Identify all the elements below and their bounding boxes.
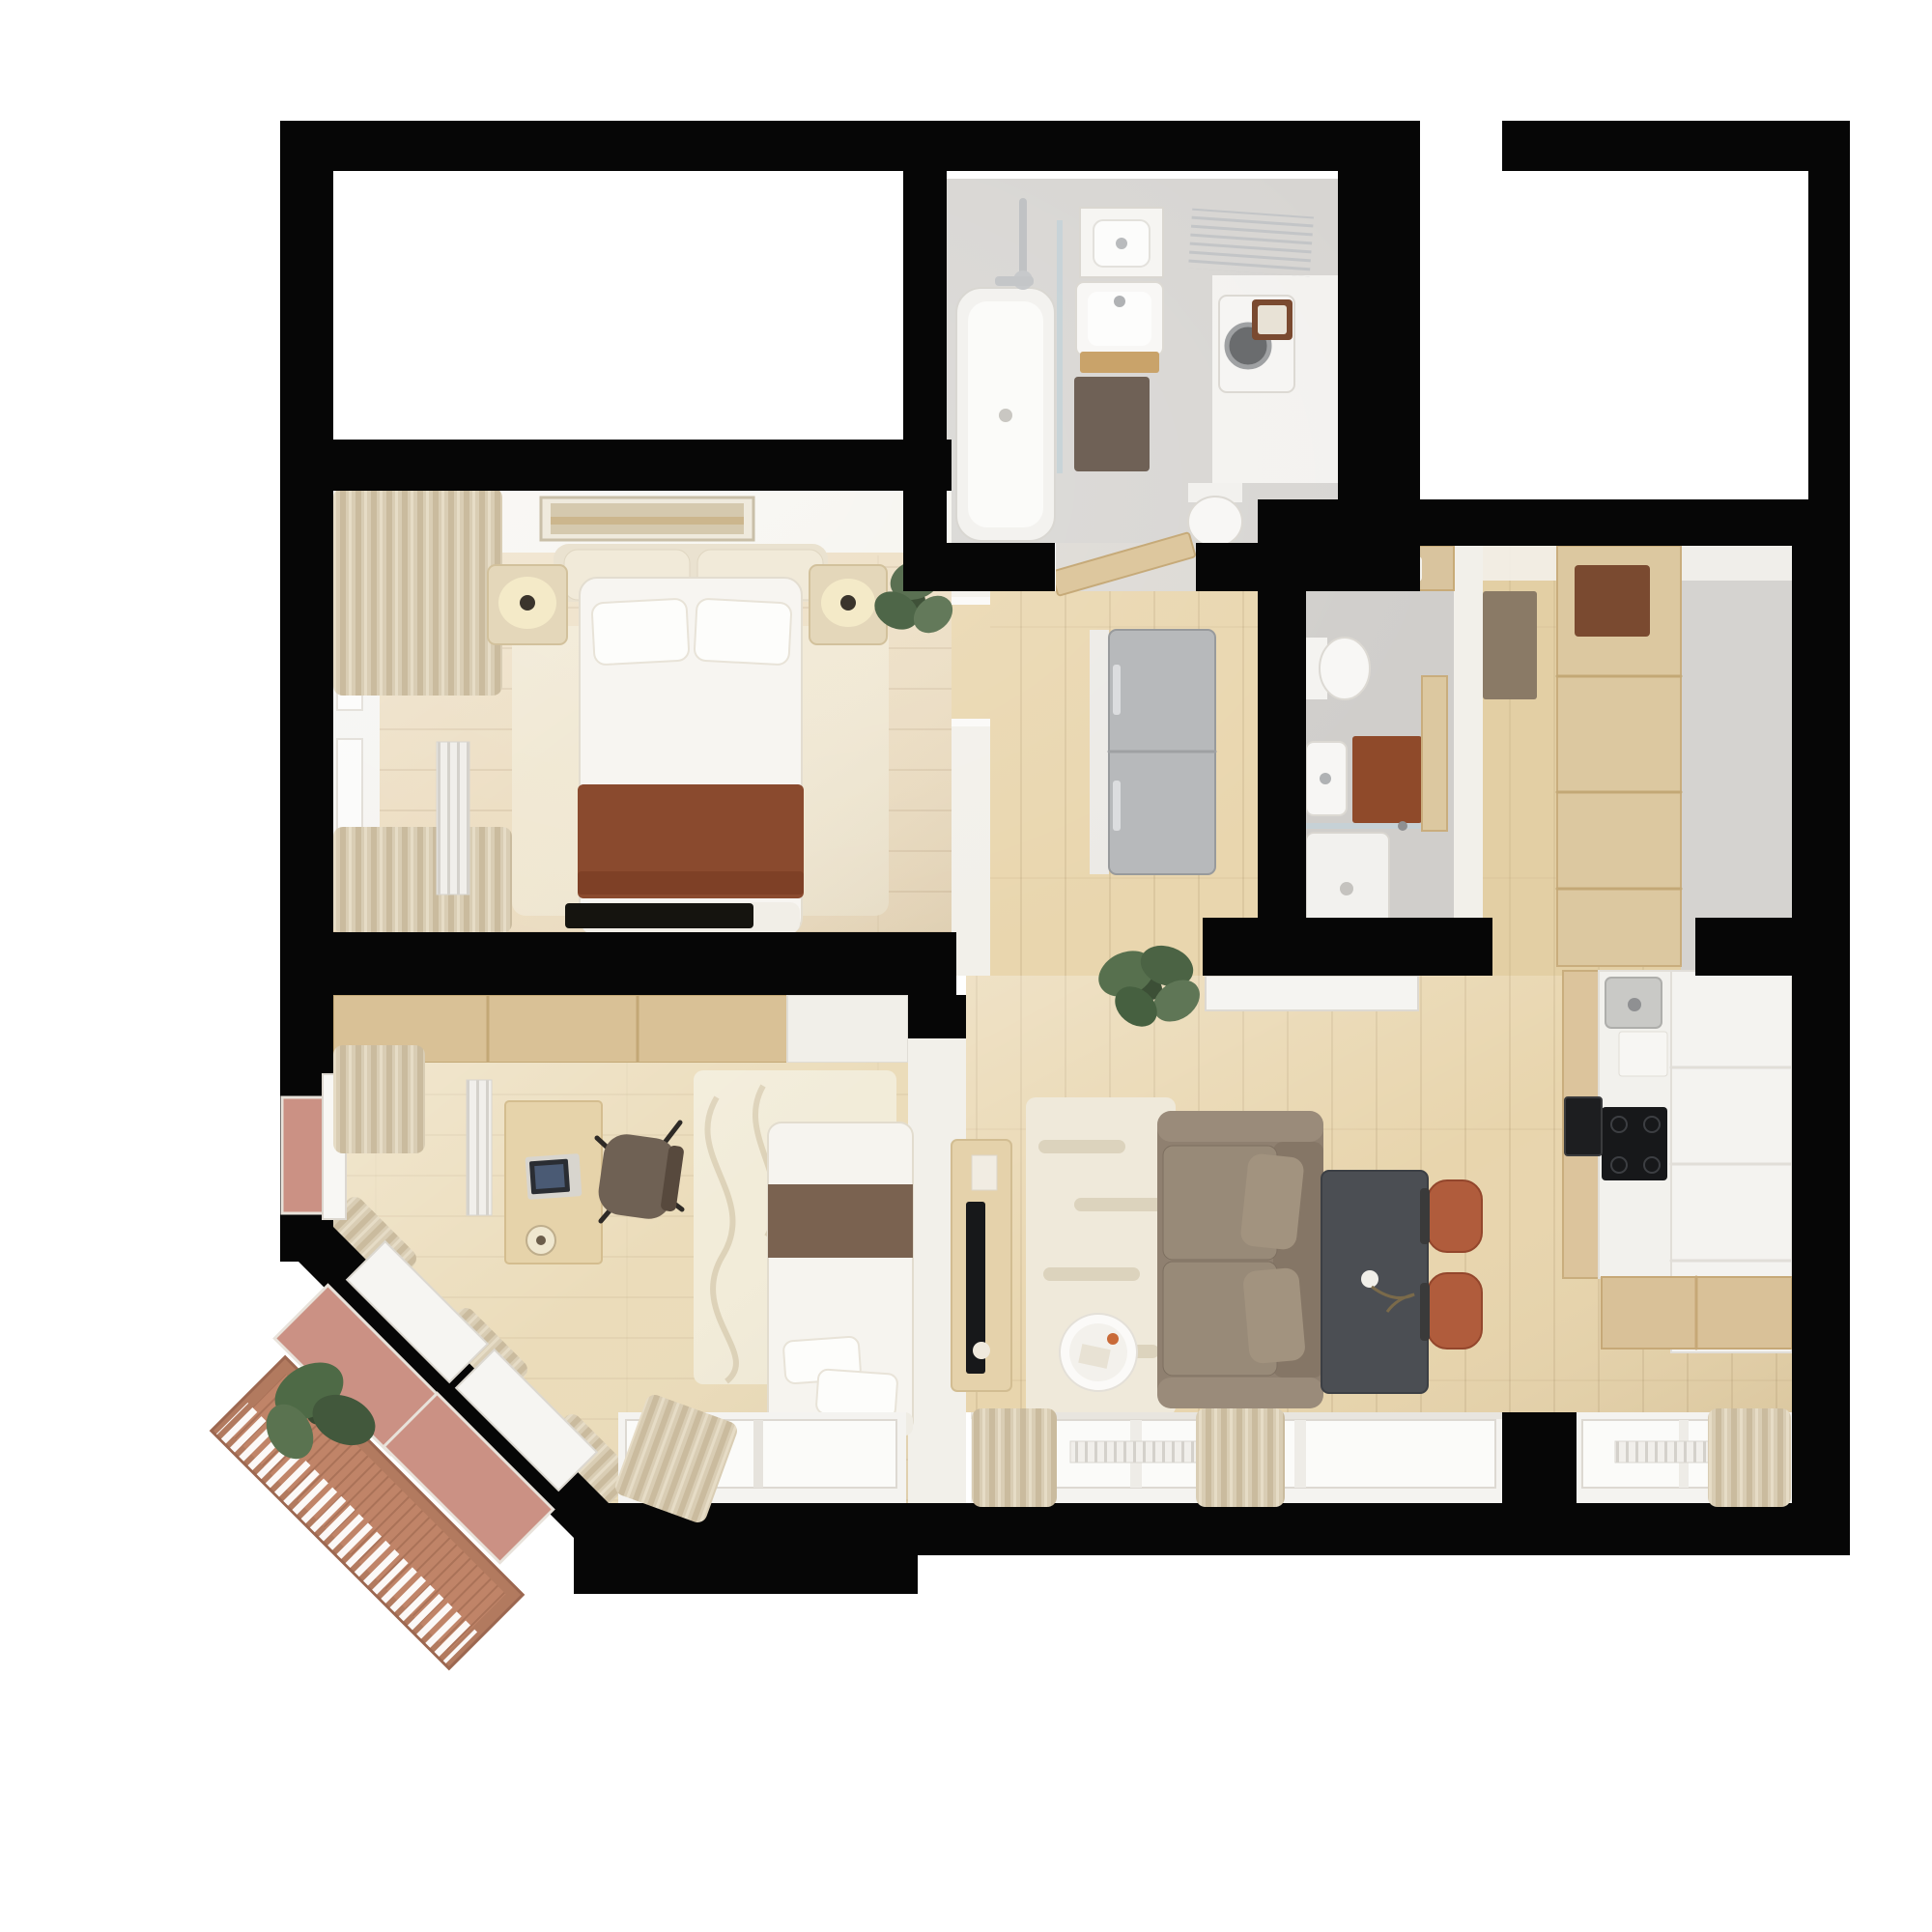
kids-bottom-mullion — [753, 1420, 763, 1488]
vanity-sink-faucet — [1114, 296, 1125, 307]
bath2-faucet — [1320, 773, 1331, 784]
bedroom-curtain-bottom — [333, 827, 512, 933]
bed-blanket-fold — [578, 871, 804, 895]
living-rug-motif-2 — [1074, 1198, 1163, 1211]
vanity-wood-base — [1080, 352, 1159, 373]
wall-top-right — [1502, 121, 1850, 171]
dining-table-cup — [1361, 1270, 1378, 1288]
bedroom-curtain-top — [333, 488, 502, 696]
wall-bath1-bottom-right — [1196, 543, 1420, 591]
wall-right-upper — [1808, 171, 1850, 499]
bathtub-drain — [999, 409, 1012, 422]
lamp-right — [840, 595, 856, 611]
living-curtain-2 — [1196, 1408, 1285, 1507]
floor-plan-canvas — [0, 0, 1932, 1932]
bath1-glass-screen — [1057, 220, 1063, 473]
towel-radiator — [1188, 209, 1314, 277]
bedroom-tv-console — [565, 903, 753, 928]
wall-bedroom-north — [280, 440, 952, 491]
living-window-mullion-2 — [1294, 1420, 1306, 1488]
bath1-toilet-bowl — [1188, 497, 1242, 547]
bath1-mat — [1074, 377, 1150, 471]
fridge-handle-1 — [1113, 665, 1121, 715]
wall-kids-bottom — [574, 1503, 918, 1594]
wall-right-main — [1792, 499, 1850, 1555]
kitchen-board — [1619, 1032, 1667, 1076]
bedroom-door-jamb-2 — [952, 719, 990, 726]
sofa-armrest-bottom — [1157, 1378, 1323, 1408]
fridge-handle-2 — [1113, 781, 1121, 831]
shower-rail — [1019, 198, 1027, 277]
living-curtain-1 — [972, 1408, 1057, 1507]
living-rug-motif-1 — [1038, 1140, 1125, 1153]
bath2-toilet-bowl — [1320, 638, 1370, 699]
console-book — [972, 1155, 997, 1190]
wall-living-top — [1203, 918, 1492, 976]
wall-entry-stub — [1695, 918, 1802, 976]
kids-bed-blanket — [768, 1184, 913, 1258]
sofa-armrest-top — [1157, 1111, 1323, 1142]
wall-bath2-entry — [1454, 546, 1483, 976]
kids-radiator — [467, 1080, 492, 1215]
living-sideboard — [1206, 976, 1418, 1010]
entry-gray-zone — [1681, 546, 1792, 976]
bedroom-radiator — [437, 742, 469, 895]
coffee-table-orange — [1107, 1333, 1119, 1345]
wall-window-pier — [1499, 1412, 1577, 1555]
bathtub-faucet — [995, 276, 1034, 286]
kids-closet-white — [787, 995, 908, 1063]
bedroom-door-jamb-1 — [952, 597, 990, 605]
dining-chair-1-arm — [1420, 1188, 1430, 1244]
wall-bottom — [898, 1503, 1850, 1555]
bath2-mirror — [1422, 676, 1447, 831]
bed-pillow-right — [694, 598, 791, 665]
built-in-oven — [1565, 1097, 1602, 1155]
wall-bath1-left — [903, 121, 947, 591]
kitchen-curtain — [1708, 1408, 1791, 1507]
laptop-screen-glow — [534, 1164, 565, 1189]
washer-towel-top — [1258, 305, 1287, 334]
wall-top-left — [280, 121, 1420, 171]
shower-drain — [1340, 882, 1353, 895]
wall-bath1-bottom-left — [947, 543, 1055, 591]
kids-curtain-left — [333, 1045, 425, 1153]
bedroom-picture-accent — [551, 517, 744, 525]
dining-chair-2 — [1428, 1273, 1482, 1349]
living-rug-motif-3 — [1043, 1267, 1140, 1281]
kids-bed-pillow-2 — [815, 1369, 897, 1419]
desk-lamp-dot — [536, 1236, 546, 1245]
entry-bench — [1575, 565, 1650, 637]
bath2-mat — [1352, 736, 1422, 823]
lamp-left — [520, 595, 535, 611]
vanity-mirror-dot — [1116, 238, 1127, 249]
kitchen-faucet — [1628, 998, 1641, 1011]
entry-doormat — [1483, 591, 1537, 699]
sofa-cushion-1 — [1239, 1152, 1305, 1251]
shower-glass-handle — [1398, 821, 1407, 831]
console-vase — [973, 1342, 990, 1359]
wall-kids-junction — [908, 995, 966, 1038]
wall-bath2-left — [1258, 546, 1306, 976]
wall-bedroom-south — [280, 932, 956, 995]
dining-chair-1 — [1428, 1180, 1482, 1252]
sofa-cushion-2 — [1242, 1267, 1306, 1365]
floor-plan-render — [0, 0, 1932, 1932]
dining-chair-2-arm — [1420, 1283, 1430, 1341]
wall-bath1-right — [1338, 121, 1420, 591]
bed-pillow-left — [591, 598, 689, 665]
